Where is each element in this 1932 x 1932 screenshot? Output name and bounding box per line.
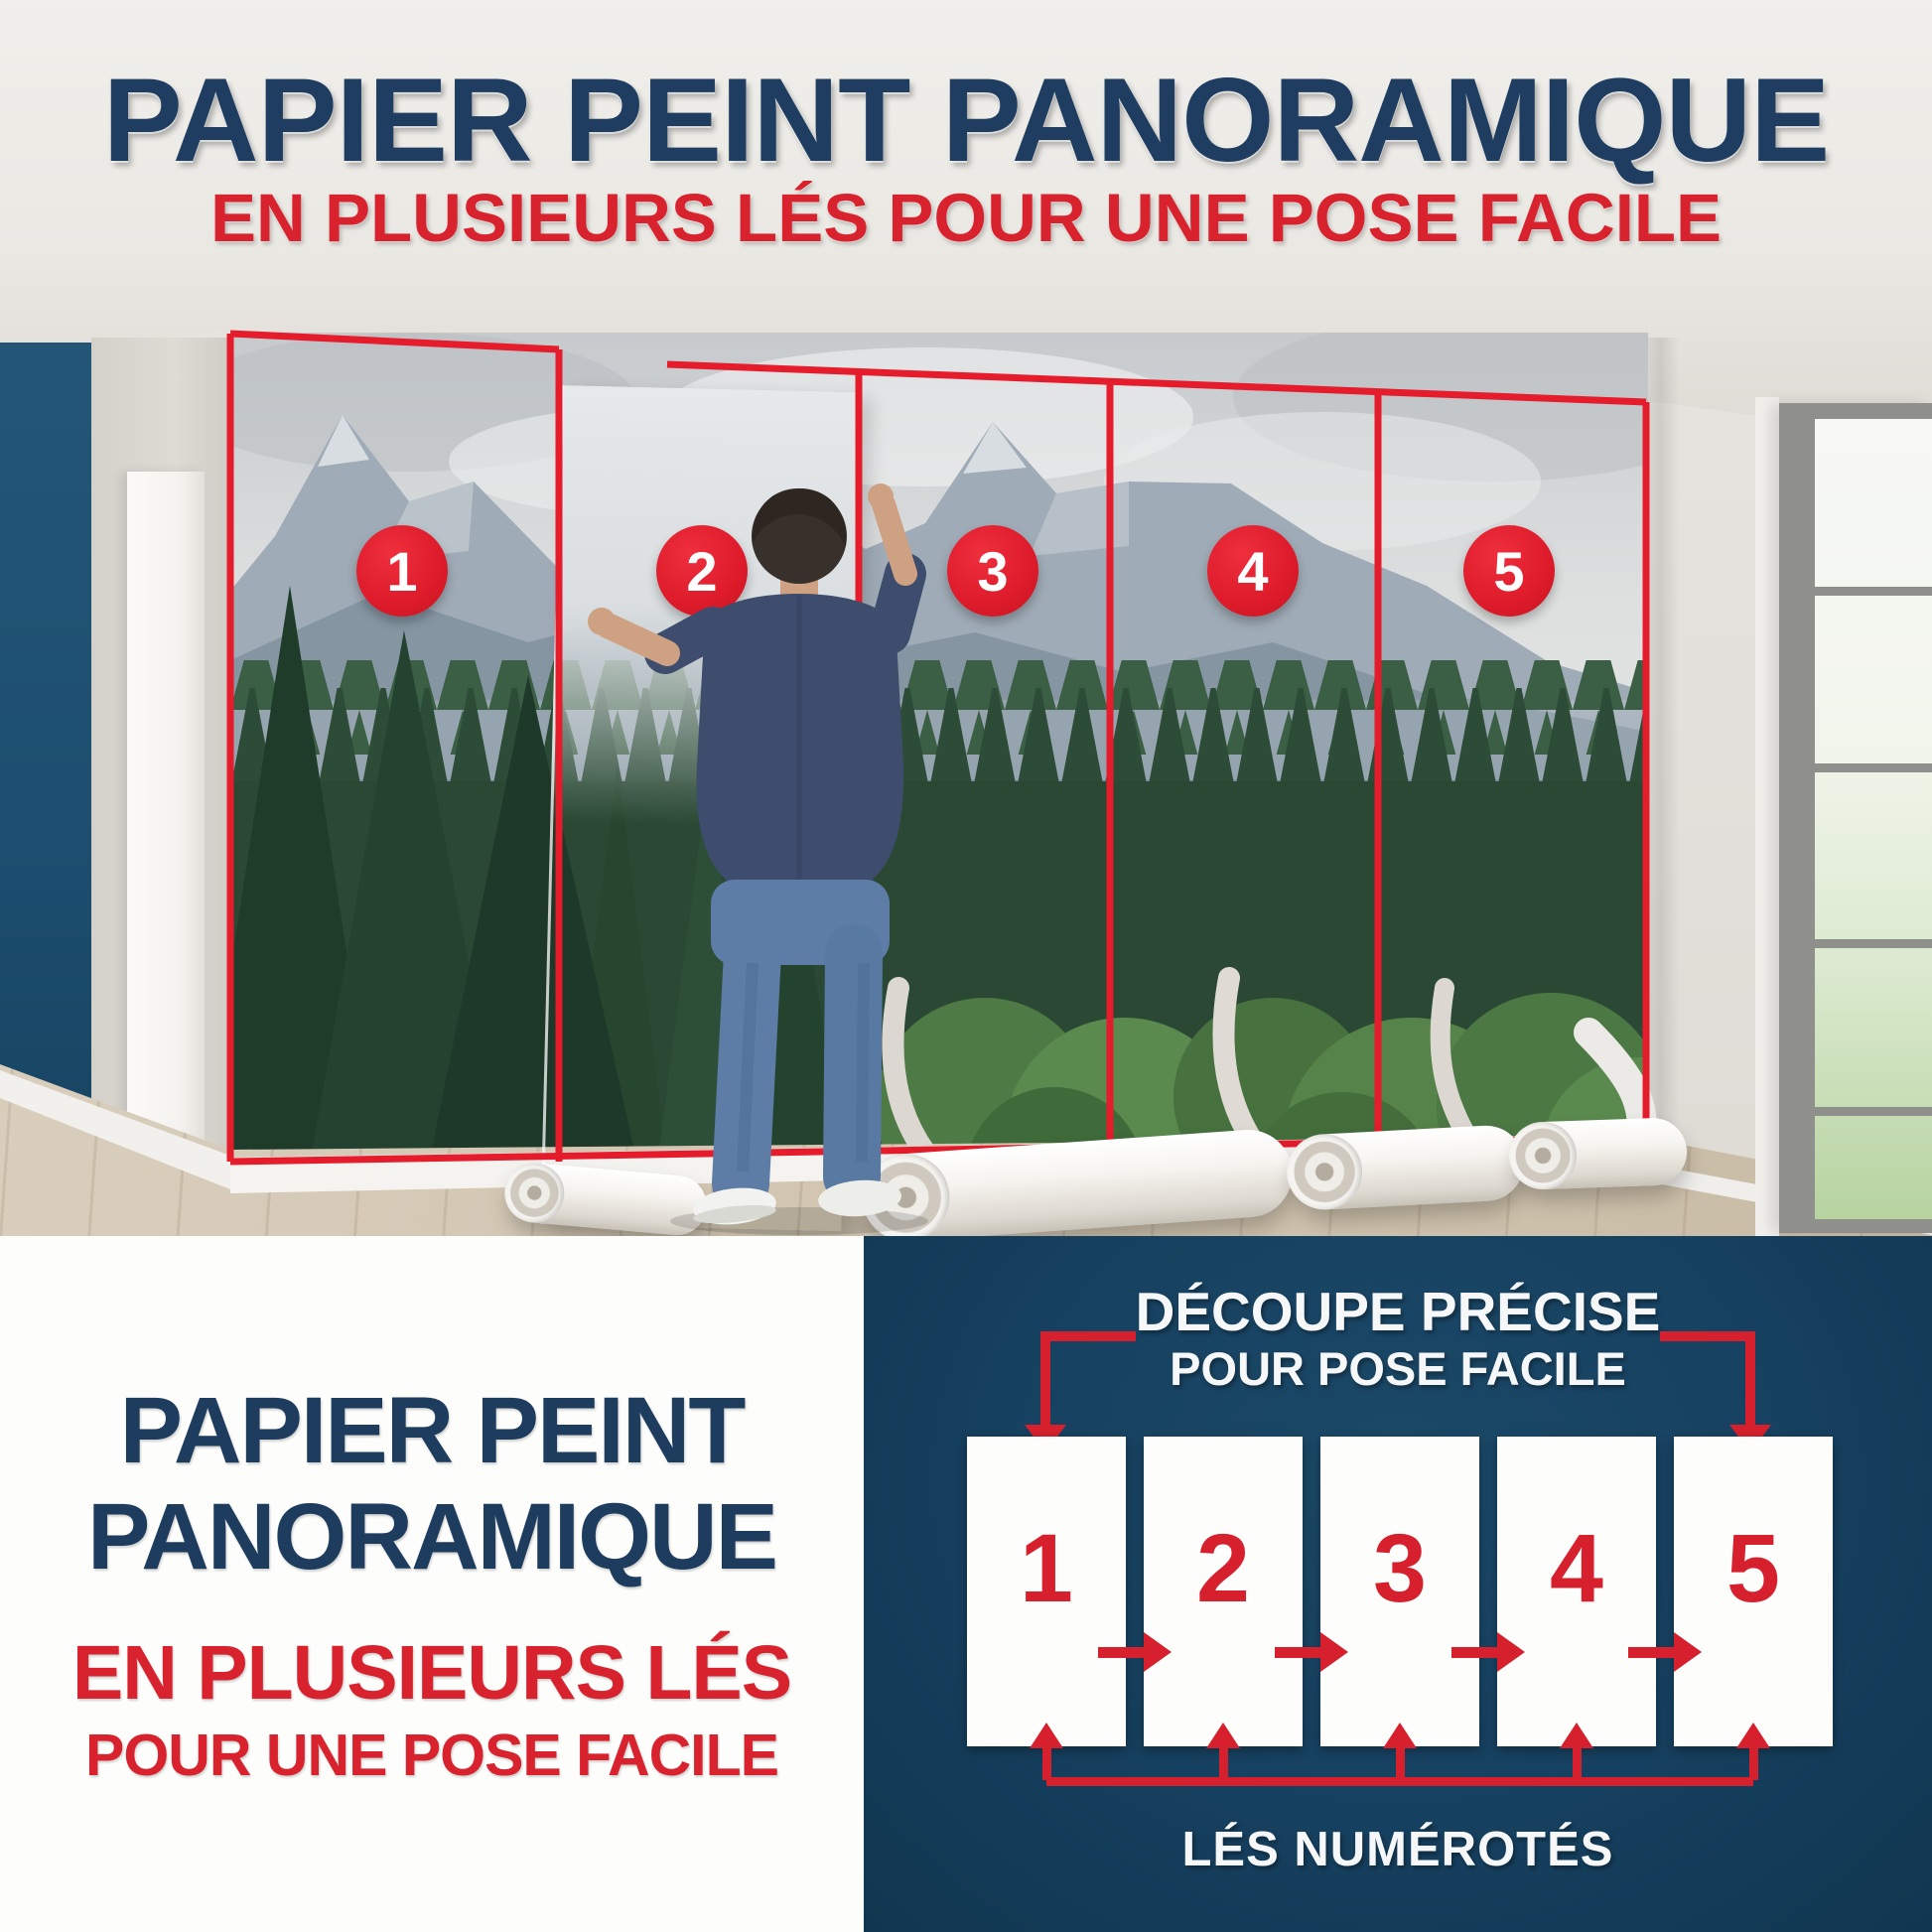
- arrow-right-icon: [1098, 1632, 1173, 1672]
- arrow-up-icon: [1736, 1723, 1770, 1748]
- window-muntin: [1815, 763, 1932, 772]
- man-figure: [556, 437, 1013, 1236]
- diagram-heading-line2: POUR POSE FACILE: [864, 1341, 1932, 1396]
- strip-panel: 4: [1497, 1437, 1656, 1746]
- strip-row: 1 2 3 4 5: [967, 1437, 1833, 1746]
- door-frame: [127, 472, 205, 1143]
- diagram-footer-label: LÉS NUMÉROTÉS: [864, 1822, 1932, 1877]
- wallpaper-roll: [1289, 1124, 1526, 1211]
- window-trim: [1755, 397, 1779, 1236]
- arrow-up-icon: [1560, 1723, 1593, 1748]
- right-corner-arrow-stem: [1745, 1331, 1755, 1427]
- numbered-strips-diagram: DÉCOUPE PRÉCISE POUR POSE FACILE 1 2 3 4…: [864, 1236, 1932, 1932]
- diagram-heading-line1: DÉCOUPE PRÉCISE: [864, 1280, 1932, 1343]
- bottom-left-text-block: PAPIER PEINT PANORAMIQUE EN PLUSIEURS LÉ…: [0, 1236, 864, 1932]
- arrow-up-stem: [1042, 1746, 1051, 1780]
- arrow-up-icon: [1030, 1723, 1063, 1748]
- bottom-title-line2: PANORAMIQUE: [87, 1484, 776, 1590]
- arrow-up-stem: [1749, 1746, 1758, 1780]
- panel-number-badge: 4: [1207, 525, 1299, 617]
- arrow-up-icon: [1383, 1723, 1417, 1748]
- left-corner-arrow-icon: [1040, 1331, 1136, 1341]
- left-corner-arrow-stem: [1040, 1331, 1050, 1427]
- bottom-subtitle-line2: POUR UNE POSE FACILE: [85, 1723, 778, 1790]
- panel-number-badge: 1: [356, 525, 448, 617]
- panel-number: 5: [1493, 539, 1524, 604]
- arrow-right-icon: [1275, 1632, 1350, 1672]
- window: [1779, 403, 1932, 1233]
- window-muntin: [1815, 587, 1932, 596]
- room-photo: 1 2 3 4 5: [0, 0, 1932, 1236]
- strip-panel: 5: [1674, 1437, 1833, 1746]
- window-glass: [1815, 419, 1932, 1219]
- arrow-right-icon: [1628, 1632, 1704, 1672]
- strip-number: 2: [1196, 1520, 1250, 1616]
- wallpaper-roll: [1512, 1117, 1688, 1190]
- bottom-subtitle-line1: EN PLUSIEURS LÉS: [72, 1631, 791, 1716]
- arrow-up-stem: [1573, 1746, 1582, 1780]
- arrow-up-stem: [1219, 1746, 1228, 1780]
- strip-panel: 1: [967, 1437, 1126, 1746]
- page-subtitle: EN PLUSIEURS LÉS POUR UNE POSE FACILE: [0, 179, 1932, 257]
- page-title: PAPIER PEINT PANORAMIQUE: [0, 52, 1932, 189]
- arrow-up-icon: [1206, 1723, 1240, 1748]
- strip-panel: 2: [1144, 1437, 1303, 1746]
- strip-number: 3: [1373, 1520, 1427, 1616]
- strip-number: 4: [1550, 1520, 1603, 1616]
- arrow-up-stem: [1396, 1746, 1405, 1780]
- panel-number-badge: 5: [1463, 525, 1555, 617]
- blue-accent-wall: [0, 343, 91, 1184]
- window-muntin: [1815, 939, 1932, 948]
- infographic-wallpaper-poster: 1 2 3 4 5: [0, 0, 1932, 1932]
- strip-number: 5: [1726, 1520, 1780, 1616]
- panel-number: 4: [1237, 539, 1268, 604]
- arrow-right-icon: [1451, 1632, 1527, 1672]
- window-muntin: [1815, 1107, 1932, 1116]
- strip-number: 1: [1020, 1520, 1073, 1616]
- right-corner-arrow-icon: [1660, 1331, 1755, 1341]
- strip-panel: 3: [1320, 1437, 1479, 1746]
- panel-number: 1: [386, 539, 417, 604]
- bottom-title-line1: PAPIER PEINT: [120, 1378, 745, 1484]
